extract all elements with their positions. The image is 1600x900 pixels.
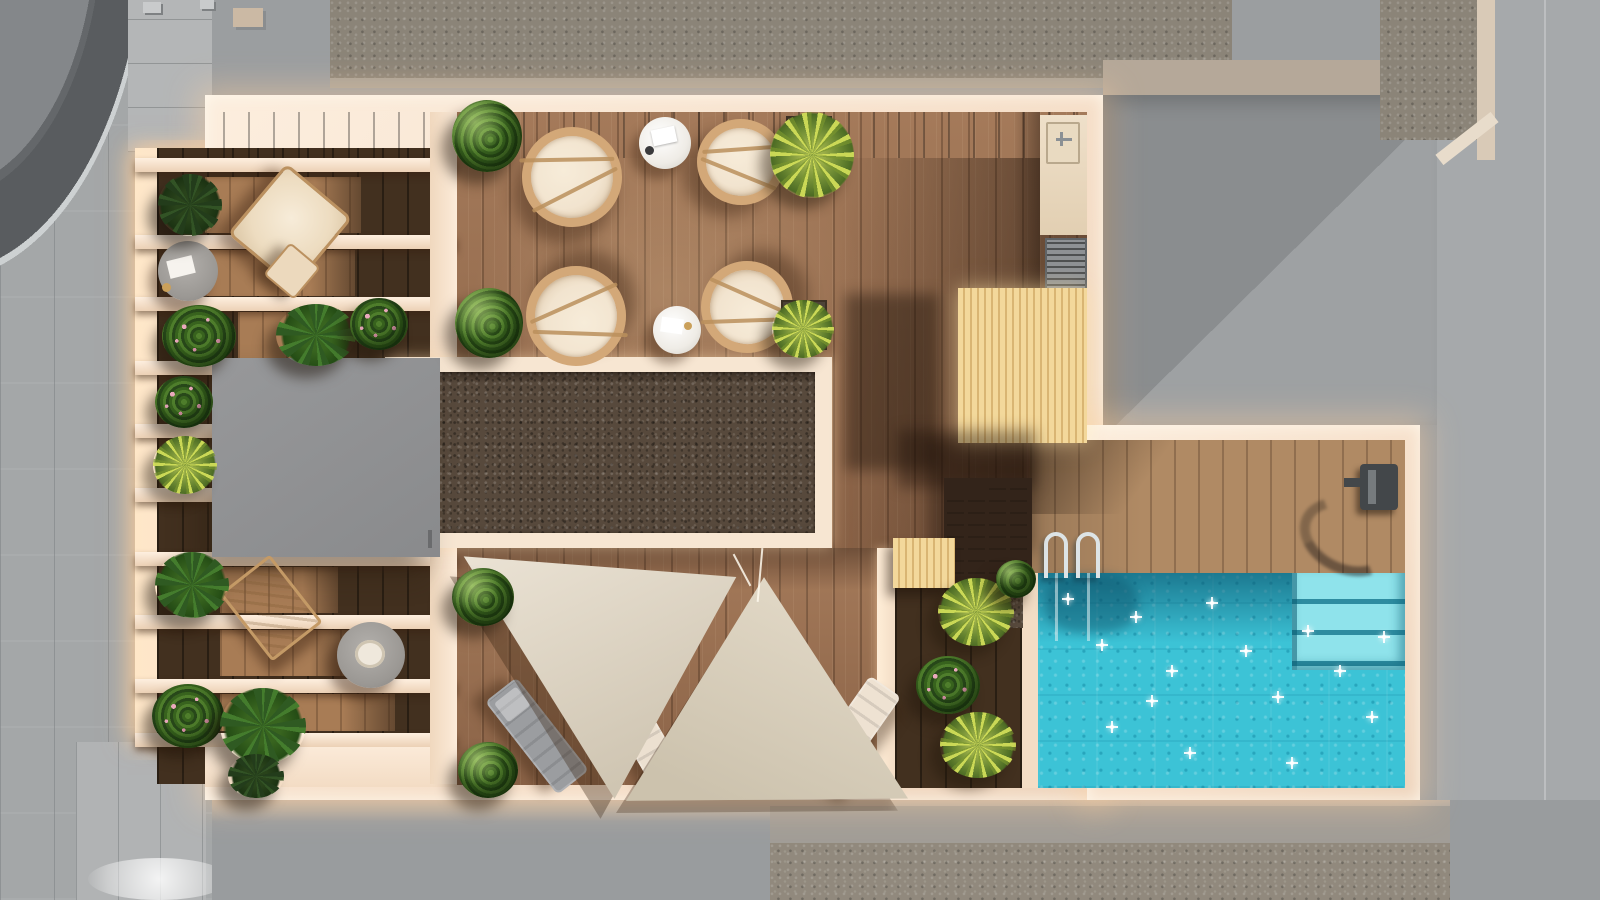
plant-palm-yucca xyxy=(940,712,1016,778)
plant-bush xyxy=(452,100,522,172)
plant-bush xyxy=(452,568,514,626)
plant-flowering xyxy=(916,656,980,714)
plant-bush-small xyxy=(996,560,1036,598)
plant-leafy xyxy=(220,688,306,764)
plants xyxy=(0,0,1600,900)
plant-flowering xyxy=(152,684,224,748)
plant-palm xyxy=(770,112,854,198)
plant-palm xyxy=(153,436,217,494)
rooftop-render xyxy=(0,0,1600,900)
plant-palm xyxy=(772,300,834,358)
plant-leafy xyxy=(155,552,229,618)
plant-flowering xyxy=(350,298,408,350)
plant-flowering xyxy=(155,376,213,428)
plant-bush xyxy=(458,742,518,798)
plant-leafy xyxy=(276,304,356,366)
plant-leafy xyxy=(158,174,222,236)
plant-leaf-fan xyxy=(228,754,284,798)
plant-flowering xyxy=(162,305,236,367)
plant-bush xyxy=(455,288,523,358)
